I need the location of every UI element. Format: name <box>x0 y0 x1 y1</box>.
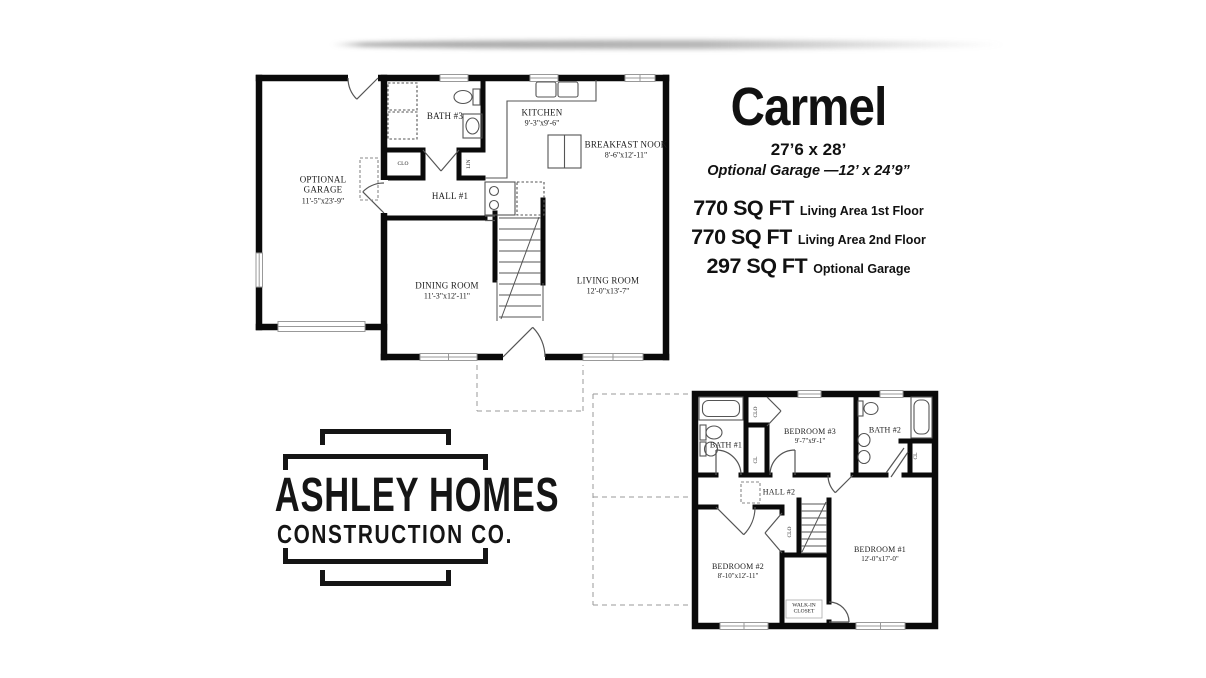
logo-bracket-top-outer <box>283 454 488 470</box>
logo-bracket-bottom-outer <box>283 548 488 564</box>
title-block: Carmel 27’6 x 28’ Optional Garage —12’ x… <box>676 80 941 279</box>
interior-walls <box>695 394 935 626</box>
fixtures <box>699 397 932 618</box>
bed3-closet-bifold <box>767 397 781 426</box>
bath1-sink-icon <box>700 442 718 456</box>
projection-lines <box>0 0 1206 678</box>
area-summary: 770 SQ FT Living Area 1st Floor 770 SQ F… <box>676 196 941 279</box>
plan-name: Carmel <box>692 80 925 134</box>
staircase <box>801 502 827 553</box>
logo-company-name: ASHLEY HOMES <box>275 473 515 519</box>
attic-access <box>741 482 760 503</box>
logo-bracket-top-inner <box>320 429 451 445</box>
plan-dimensions: 27’6 x 28’ <box>676 140 941 160</box>
second-floor-drawing <box>689 388 941 634</box>
exterior-walls <box>695 394 935 626</box>
area-row-first-floor: 770 SQ FT Living Area 1st Floor <box>676 196 941 221</box>
flyer-page: { "header": { "plan_name": "Carmel", "di… <box>0 0 1206 678</box>
bed2-closet-bifold <box>765 513 782 553</box>
logo-bracket-bottom-inner <box>320 570 451 586</box>
porch-outline <box>477 365 583 411</box>
walkin-closet-box <box>786 600 822 618</box>
bath2-tub-icon <box>911 397 932 438</box>
area-row-second-floor: 770 SQ FT Living Area 2nd Floor <box>676 225 941 250</box>
garage-note: Optional Garage —12’ x 24’9” <box>676 163 941 179</box>
bath2-sinks-icon <box>858 434 870 464</box>
logo-company-subtitle: CONSTRUCTION CO. <box>261 521 528 547</box>
bath1-toilet-icon <box>700 425 722 440</box>
bath1-tub-icon <box>699 397 743 420</box>
company-logo: ASHLEY HOMES CONSTRUCTION CO. <box>228 424 562 604</box>
second-floor-plan: BATH #1 BEDROOM #3 9'-7"x9'-1" BATH #2 H… <box>689 388 941 634</box>
bath2-toilet-icon <box>858 401 878 416</box>
area-row-garage: 297 SQ FT Optional Garage <box>676 254 941 279</box>
floor-alignment-lines <box>593 394 689 605</box>
